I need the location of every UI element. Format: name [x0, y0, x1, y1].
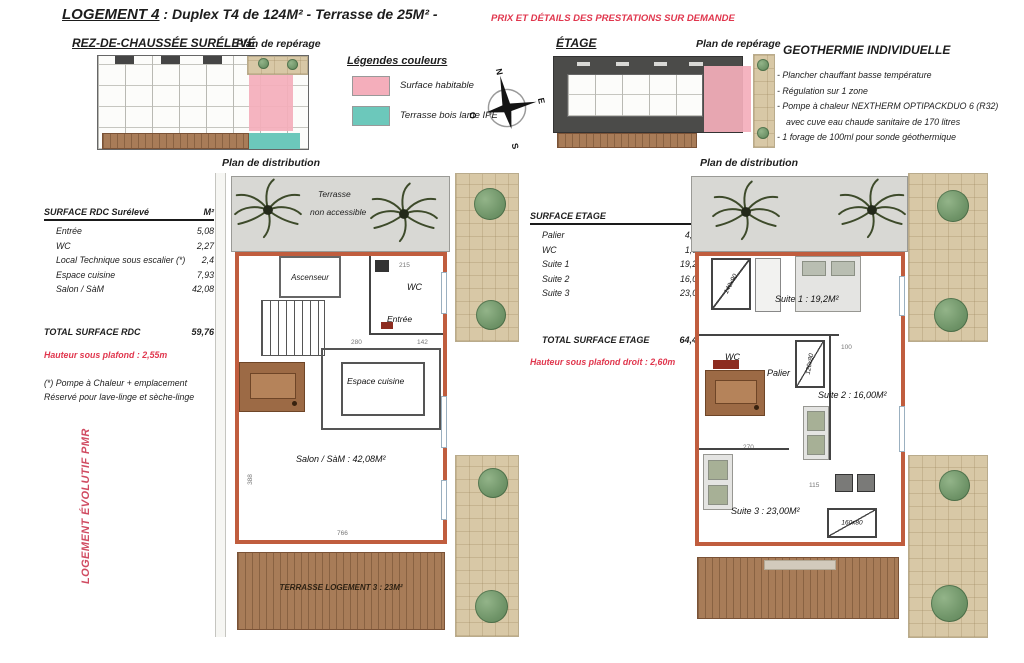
compass-north-label: N — [494, 68, 505, 76]
row-value: 2,27 — [197, 239, 214, 254]
pillow — [831, 261, 855, 276]
rdc-table-total: TOTAL SURFACE RDC 59,76 — [44, 327, 214, 337]
dimension-label: 215 — [399, 262, 410, 269]
row-value: 42,08 — [192, 282, 214, 297]
window — [441, 396, 447, 448]
window — [441, 272, 447, 314]
etage-surface-table: SURFACE ETAGE M² Palier4,41 WC1,81 Suite… — [530, 211, 702, 367]
shower-suite3: 160x80 — [827, 508, 877, 538]
etage-table-rows: Palier4,41 WC1,81 Suite 119,20 Suite 216… — [530, 225, 702, 301]
bush — [757, 59, 769, 71]
bush — [937, 190, 969, 222]
rdc-footnote-1: (*) Pompe à Chaleur + emplacement — [44, 376, 214, 390]
bush — [931, 585, 968, 622]
geothermie-bullet: - Pompe à chaleur NEXTHERM OPTIPACKDUO 6… — [777, 99, 1023, 115]
etage-table-header: SURFACE ETAGE M² — [530, 211, 702, 225]
window — [899, 406, 905, 452]
fixture — [857, 474, 875, 492]
shower-size-label: 120x80 — [805, 353, 816, 375]
etage-reperage-label: Plan de repérage — [696, 38, 781, 50]
table-row: Suite 216,00 — [542, 272, 702, 287]
row-label: WC — [542, 243, 557, 258]
geothermie-bullet-continuation: avec cuve eau chaude sanitaire de 170 li… — [777, 115, 1023, 131]
etage-upper-terrace-band — [691, 176, 908, 252]
dimension-label: 280 — [351, 339, 362, 346]
rdc-table-rows: Entrée5,08 WC2,27 Local Technique sous e… — [44, 221, 214, 297]
total-label: TOTAL SURFACE ETAGE — [542, 335, 649, 345]
geothermie-bullet: - 1 forage de 100ml pour sonde géothermi… — [777, 130, 1023, 146]
rdc-table-title: SURFACE RDC Surélevé — [44, 207, 149, 217]
elevator-room: Ascenseur — [279, 256, 341, 298]
rdc-table-header: SURFACE RDC Surélevé M² — [44, 207, 214, 221]
row-label: Suite 3 — [542, 286, 569, 301]
wc-label: WC — [407, 282, 422, 292]
rdc-thumb-highlight-habitable — [249, 75, 293, 132]
row-label: Salon / SàM — [56, 282, 104, 297]
legend-label-habitable: Surface habitable — [400, 80, 474, 91]
bed-suite2 — [803, 406, 829, 460]
palm-tree-icon — [224, 173, 312, 247]
dimension-label: 388 — [247, 474, 254, 485]
common-staircase — [261, 300, 325, 356]
suite3-label: Suite 3 : 23,00M² — [731, 506, 800, 516]
total-value: 59,76 — [191, 327, 214, 337]
rdc-thumb-highlight-terrasse — [249, 133, 299, 149]
rdc-reperage-label: Plan de repérage — [236, 38, 321, 50]
entree-label: Entrée — [387, 314, 412, 324]
etage-table-title: SURFACE ETAGE — [530, 211, 606, 221]
staircase-steps — [250, 373, 296, 399]
pillow — [802, 261, 826, 276]
row-label: Suite 2 — [542, 272, 569, 287]
staircase-steps — [715, 380, 757, 404]
legend-title: Légendes couleurs — [347, 55, 447, 67]
table-row: Entrée5,08 — [56, 224, 214, 239]
legend-swatch-terrasse — [352, 106, 390, 126]
pillow — [807, 435, 825, 455]
fixture — [835, 474, 853, 492]
shower-size-label: 140x90 — [723, 273, 739, 295]
table-row: Local Technique sous escalier (*)2,4 — [56, 253, 214, 268]
staircase-arrow — [292, 401, 297, 406]
table-row: Palier4,41 — [542, 228, 702, 243]
table-row: Espace cuisine7,93 — [56, 268, 214, 283]
table-row: WC1,81 — [542, 243, 702, 258]
row-label: Local Technique sous escalier (*) — [56, 253, 185, 268]
elevator-label: Ascenseur — [291, 273, 329, 282]
shower-suite1: 140x90 — [711, 258, 751, 310]
rdc-thumb-deck — [102, 133, 249, 149]
suite2-label: Suite 2 : 16,00M² — [818, 390, 887, 400]
rdc-surface-table: SURFACE RDC Surélevé M² Entrée5,08 WC2,2… — [44, 207, 214, 404]
etage-distribution-label: Plan de distribution — [700, 157, 798, 169]
etage-thumb-rooflight — [577, 62, 590, 67]
bush — [474, 188, 506, 220]
etage-unit-plan: 140x90 Suite 1 : 19,2M² 100 WC Palier 12… — [695, 252, 905, 546]
kitchen-counter — [341, 362, 425, 416]
bush — [258, 58, 269, 69]
page-title: LOGEMENT 4 : Duplex T4 de 124M² - Terras… — [62, 6, 438, 24]
dimension-label: 115 — [809, 482, 819, 489]
logement-number: LOGEMENT 4 — [62, 6, 160, 23]
etage-section-title: ÉTAGE — [556, 36, 596, 50]
staircase-arrow — [754, 405, 759, 410]
etage-thumb-rooflight — [689, 62, 702, 67]
stair-guard — [713, 360, 739, 369]
rdc-footnote-2: Réservé pour lave-linge et sèche-linge — [44, 390, 214, 404]
terrace-deck-label: TERRASSE LOGEMENT 3 : 23M² — [279, 583, 402, 592]
pmr-note: LOGEMENT ÉVOLUTIF PMR — [80, 428, 92, 584]
row-label: Palier — [542, 228, 565, 243]
dimension-label: 766 — [337, 530, 348, 537]
table-row: Salon / SàM42,08 — [56, 282, 214, 297]
table-row: Suite 323,00 — [542, 286, 702, 301]
legend-swatch-habitable — [352, 76, 390, 96]
row-label: Suite 1 — [542, 257, 569, 272]
kitchen-label: Espace cuisine — [347, 376, 404, 386]
etage-thumb-highlight-habitable — [704, 66, 751, 132]
dimension-label: 142 — [417, 339, 428, 346]
bush — [939, 470, 970, 501]
palm-tree-icon — [702, 175, 790, 249]
bush — [934, 298, 968, 332]
palm-tree-icon — [828, 173, 916, 247]
rdc-unit-plan: Ascenseur 215 WC Entrée 280 142 Espace c… — [235, 252, 447, 544]
rdc-thumb-roof-block — [203, 56, 222, 64]
deck-inset — [764, 560, 836, 570]
bush — [476, 300, 506, 330]
duplex-staircase — [239, 362, 305, 412]
row-value: 7,93 — [197, 268, 214, 283]
rdc-ceiling-note: Hauteur sous plafond : 2,55m — [44, 350, 214, 360]
etage-terrace-deck — [697, 557, 899, 619]
kitchen-area: Espace cuisine — [321, 348, 441, 430]
compass-south-label: S — [510, 142, 521, 150]
pillow — [708, 485, 728, 505]
row-label: Entrée — [56, 224, 82, 239]
row-value: 2,4 — [202, 253, 214, 268]
rdc-thumb-roof-block — [115, 56, 134, 64]
rdc-terrace-deck: TERRASSE LOGEMENT 3 : 23M² — [237, 552, 445, 630]
bush — [287, 59, 298, 70]
geothermie-bullet: - Plancher chauffant basse température — [777, 68, 1023, 84]
pillow — [708, 460, 728, 480]
window — [899, 276, 905, 316]
row-label: Espace cuisine — [56, 268, 115, 283]
bush — [478, 468, 508, 498]
terrace-note-line1: Terrasse — [318, 189, 351, 199]
garden-strip — [455, 173, 519, 342]
shower-palier: 120x80 — [795, 340, 825, 388]
etage-thumb-deck — [557, 133, 697, 148]
rdc-section-title: REZ-DE-CHAUSSÉE SURÉLEVÉ — [72, 36, 255, 50]
window — [441, 480, 447, 520]
rdc-thumb-building — [97, 55, 309, 150]
total-label: TOTAL SURFACE RDC — [44, 327, 141, 337]
etage-ceiling-note: Hauteur sous plafond droit : 2,60m — [530, 357, 702, 367]
duplex-staircase — [705, 370, 765, 416]
etage-thumb-interior — [567, 74, 702, 118]
bathroom-fixtures — [835, 474, 875, 492]
rdc-upper-terrace-band: Terrasse non accessible — [231, 176, 450, 252]
garden-strip — [908, 173, 988, 342]
geothermie-list: - Plancher chauffant basse température -… — [777, 68, 1023, 146]
rdc-reperage-plan — [97, 51, 309, 150]
rdc-distribution-plan: Terrasse non accessible Ascenseur 215 WC… — [228, 171, 456, 641]
table-row: Suite 119,20 — [542, 257, 702, 272]
etage-thumb-rooflight — [654, 62, 667, 67]
etage-distribution-plan: 140x90 Suite 1 : 19,2M² 100 WC Palier 12… — [688, 171, 920, 641]
rdc-thumb-roof-block — [161, 56, 180, 64]
etage-thumb-walls — [568, 75, 701, 117]
logement-subtitle: : Duplex T4 de 124M² - Terrasse de 25M² … — [160, 6, 438, 22]
salon-label: Salon / SàM : 42,08M² — [296, 454, 386, 464]
row-value: 5,08 — [197, 224, 214, 239]
palm-tree-icon — [360, 177, 448, 251]
bed-suite3 — [703, 454, 733, 510]
compass-rose-icon: N E S O — [468, 64, 546, 152]
price-note: PRIX ET DÉTAILS DES PRESTATIONS SUR DEMA… — [491, 13, 735, 24]
etage-thumb-rooflight — [616, 62, 629, 67]
garden-strip — [908, 455, 988, 638]
wc-equipment — [375, 260, 389, 272]
palier-label: Palier — [767, 368, 790, 378]
floor-plan-brochure-page: LOGEMENT 4 : Duplex T4 de 124M² - Terras… — [0, 0, 1024, 663]
etage-table-total: TOTAL SURFACE ETAGE 64,42 — [530, 335, 702, 345]
pillow — [807, 411, 825, 431]
geothermie-title: GEOTHERMIE INDIVIDUELLE — [783, 43, 950, 57]
shower-size-label: 160x80 — [841, 520, 862, 527]
rdc-table-unit: M² — [204, 207, 215, 217]
rdc-thumb-garden — [247, 56, 308, 75]
etage-reperage-plan — [553, 51, 775, 150]
compass-east-label: E — [536, 97, 546, 105]
dimension-label: 100 — [841, 344, 852, 351]
rdc-distribution-label: Plan de distribution — [222, 157, 320, 169]
suite1-label: Suite 1 : 19,2M² — [775, 294, 839, 304]
compass-west-label: O — [468, 111, 478, 120]
bush — [757, 127, 769, 139]
partition-wall — [699, 448, 789, 450]
table-row: WC2,27 — [56, 239, 214, 254]
bush — [475, 590, 508, 623]
geothermie-bullet: - Régulation sur 1 zone — [777, 84, 1023, 100]
terrace-note-line2: non accessible — [310, 207, 366, 217]
garden-strip — [455, 455, 519, 637]
row-label: WC — [56, 239, 71, 254]
partition-wall — [699, 334, 839, 336]
